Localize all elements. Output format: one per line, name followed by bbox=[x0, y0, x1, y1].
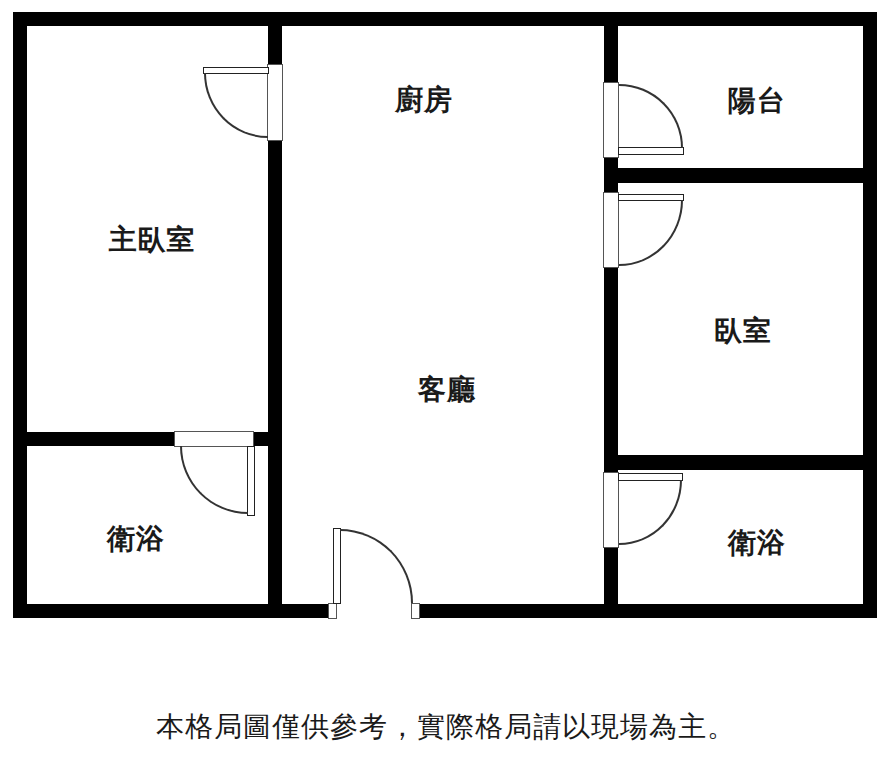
room-label-master-bedroom: 主臥室 bbox=[109, 221, 196, 259]
wall-interior-left-main-segment bbox=[268, 140, 282, 604]
wall-outer-left bbox=[13, 12, 27, 618]
room-label-bedroom: 臥室 bbox=[714, 312, 772, 350]
room-label-bathroom-right: 衛浴 bbox=[728, 524, 786, 562]
bedroom-door-swing-arc bbox=[619, 200, 683, 266]
wall-interior-left-top-segment bbox=[268, 26, 282, 65]
wall-outer-bottom-right-segment bbox=[420, 604, 877, 618]
master-bedroom-door-jamb bbox=[267, 64, 283, 141]
bathroom-left-door-jamb bbox=[174, 431, 254, 447]
wall-masterbedroom-bathroom-right-segment bbox=[253, 432, 268, 446]
master-bedroom-door-swing-arc bbox=[204, 73, 268, 138]
wall-outer-bottom-left-segment bbox=[13, 604, 328, 618]
wall-outer-right bbox=[863, 12, 877, 618]
bathroom-right-door-swing-arc bbox=[619, 480, 682, 545]
wall-outer-top bbox=[13, 12, 877, 26]
bathroom-right-door-jamb bbox=[603, 472, 619, 548]
wall-interior-right-bottom-segment bbox=[604, 547, 618, 604]
disclaimer-caption: 本格局圖僅供參考，實際格局請以現場為主。 bbox=[156, 708, 736, 746]
bathroom-left-door-leaf bbox=[247, 446, 255, 516]
floor-plan: 主臥室 廚房 陽台 臥室 客廳 衛浴 衛浴 本格局圖僅供參考，實際格局請以現場為… bbox=[0, 0, 889, 760]
balcony-door-leaf bbox=[618, 147, 684, 155]
room-label-bathroom-left: 衛浴 bbox=[107, 520, 165, 558]
wall-bedroom-bathroom-divider bbox=[618, 455, 863, 470]
room-label-living-room: 客廳 bbox=[418, 371, 476, 409]
entrance-door-swing-arc bbox=[340, 529, 413, 603]
room-label-balcony: 陽台 bbox=[728, 82, 786, 120]
bedroom-door-jamb bbox=[603, 192, 619, 268]
wall-balcony-bedroom-divider bbox=[618, 168, 863, 183]
room-label-kitchen: 廚房 bbox=[395, 81, 453, 119]
balcony-door-swing-arc bbox=[619, 84, 683, 148]
wall-interior-right-top-segment bbox=[604, 26, 618, 83]
wall-interior-right-mid-segment-1 bbox=[604, 157, 618, 193]
entrance-door-jamb-left bbox=[328, 603, 337, 619]
wall-interior-right-mid-segment-2 bbox=[604, 267, 618, 473]
entrance-door-jamb-right bbox=[411, 603, 420, 619]
balcony-door-jamb bbox=[603, 82, 619, 158]
bathroom-left-door-swing-arc bbox=[180, 446, 248, 514]
wall-masterbedroom-bathroom-left-segment bbox=[27, 432, 175, 446]
